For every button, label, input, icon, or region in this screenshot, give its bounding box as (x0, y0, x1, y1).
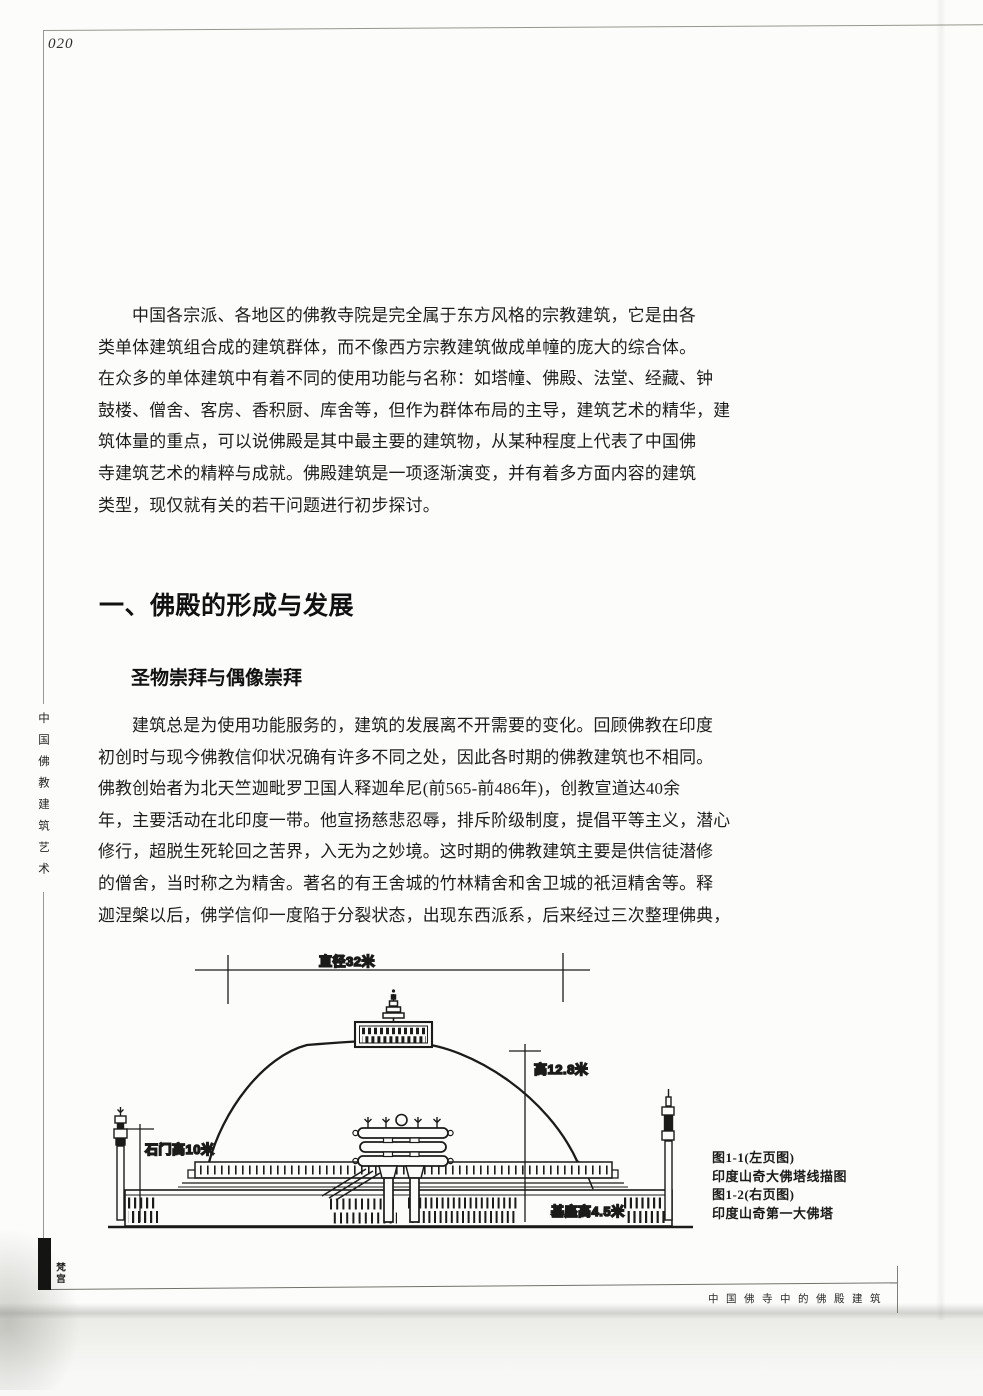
harmika (355, 1022, 432, 1047)
text-line: 年，主要活动在北印度一带。他宣扬慈悲忍辱，排斥阶级制度，提倡平等主义，潜心 (98, 805, 710, 837)
left-rule (43, 30, 44, 1290)
dome-height-label: 高12.8米 (534, 1062, 589, 1077)
text-line: 迦涅槃以后，佛学信仰一度陷于分裂状态，出现东西派系，后来经过三次整理佛典， (98, 900, 710, 932)
text-line: 中国各宗派、各地区的佛教寺院是完全属于东方风格的宗教建筑，它是由各 (98, 300, 710, 332)
text-line: 鼓楼、僧舍、客房、香积厨、库舍等，但作为群体布局的主导，建筑艺术的精华，建 (98, 395, 710, 427)
text-line: 类单体建筑组合成的建筑群体，而不像西方宗教建筑做成单幢的庞大的综合体。 (98, 332, 710, 364)
gate-height-label: 石门高10米 (144, 1142, 215, 1157)
book-title-vertical: 中国佛教建筑艺术 (32, 704, 54, 892)
top-rule (43, 24, 983, 31)
scan-background-band (0, 1320, 983, 1396)
running-footer: 中国佛寺中的佛殿建筑 (708, 1291, 888, 1306)
section-paragraph: 建筑总是为使用功能服务的，建筑的发展离不开需要的变化。回顾佛教在印度初创时与现今… (98, 710, 710, 931)
text-line: 佛教创始者为北天竺迦毗罗卫国人释迦牟尼(前565-前486年)，创教宣道达40余 (98, 773, 710, 805)
scan-streak (936, 0, 946, 1396)
caption-line: 印度山奇第一大佛塔 (712, 1205, 847, 1224)
caption-line: 印度山奇大佛塔线描图 (712, 1168, 847, 1187)
section-heading: 一、佛殿的形成与发展 (99, 586, 354, 622)
figure-caption: 图1-1(左页图)印度山奇大佛塔线描图图1-2(右页图)印度山奇第一大佛塔 (712, 1149, 847, 1223)
book-page: 020 中国佛教建筑艺术 中国各宗派、各地区的佛教寺院是完全属于东方风格的宗教建… (0, 0, 983, 1396)
chattra-finial (383, 989, 404, 1022)
series-marker-bar (38, 1238, 51, 1290)
diameter-label: 直径32米 (319, 954, 375, 969)
page-number: 020 (48, 36, 74, 53)
section-subheading: 圣物崇拜与偶像崇拜 (131, 663, 302, 690)
series-marker-text: 梵宫 (52, 1262, 66, 1285)
intro-paragraph: 中国各宗派、各地区的佛教寺院是完全属于东方风格的宗教建筑，它是由各类单体建筑组合… (98, 300, 710, 521)
stupa-line-drawing: 直径32米 高12.8米 石门高10米 基座高4.5米 (100, 950, 700, 1242)
text-line: 筑体量的重点，可以说佛殿是其中最主要的建筑物，从某种程度上代表了中国佛 (98, 426, 710, 458)
text-line: 初创时与现今佛教信仰状况确有许多不同之处，因此各时期的佛教建筑也不相同。 (98, 742, 710, 774)
text-line: 类型，现仅就有关的若干问题进行初步探讨。 (98, 490, 710, 522)
text-line: 在众多的单体建筑中有着不同的使用功能与名称：如塔幢、佛殿、法堂、经藏、钟 (98, 363, 710, 395)
dimension-lines (126, 953, 590, 1222)
text-line: 修行，超脱生死轮回之苦界，入无为之妙境。这时期的佛教建筑主要是供信徒潜修 (98, 836, 710, 868)
text-line: 寺建筑艺术的精粹与成就。佛殿建筑是一项逐渐演变，并有着多方面内容的建筑 (98, 458, 710, 490)
text-line: 建筑总是为使用功能服务的，建筑的发展离不开需要的变化。回顾佛教在印度 (98, 710, 710, 742)
text-line: 的僧舍，当时称之为精舍。著名的有王舍城的竹林精舍和舍卫城的祇洹精舍等。释 (98, 868, 710, 900)
caption-line: 图1-1(左页图) (712, 1149, 847, 1168)
caption-line: 图1-2(右页图) (712, 1186, 847, 1205)
bottom-rule (51, 1282, 897, 1290)
base-height-label: 基座高4.5米 (550, 1204, 625, 1219)
